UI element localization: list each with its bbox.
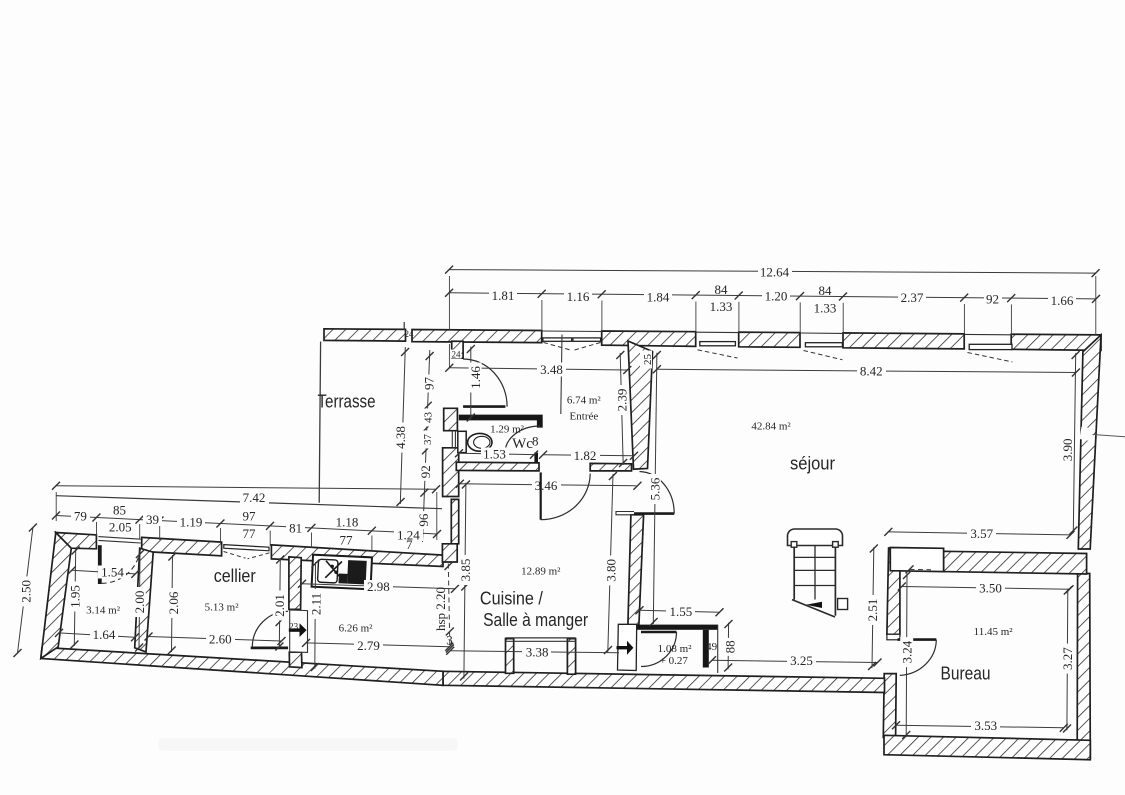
svg-text:2.37: 2.37 xyxy=(901,290,924,305)
svg-text:1.29 m²: 1.29 m² xyxy=(490,424,525,436)
svg-text:2.05: 2.05 xyxy=(109,519,132,534)
svg-text:1.84: 1.84 xyxy=(647,289,670,304)
svg-text:1.19: 1.19 xyxy=(180,515,203,530)
svg-text:92: 92 xyxy=(418,465,433,478)
svg-text:11.45 m²: 11.45 m² xyxy=(974,626,1014,638)
svg-text:2.06: 2.06 xyxy=(166,591,181,614)
svg-text:3.80: 3.80 xyxy=(604,559,619,582)
svg-text:7: 7 xyxy=(406,537,413,552)
svg-text:hsp 2.20: hsp 2.20 xyxy=(433,587,448,631)
svg-text:3.25: 3.25 xyxy=(790,653,813,668)
svg-text:3.48: 3.48 xyxy=(540,362,563,377)
svg-text:2.01: 2.01 xyxy=(272,594,287,617)
svg-text:2.11: 2.11 xyxy=(309,593,324,615)
svg-text:8.42: 8.42 xyxy=(860,363,883,378)
svg-text:84: 84 xyxy=(819,283,833,298)
svg-text:Bureau: Bureau xyxy=(941,663,991,683)
svg-text:97: 97 xyxy=(243,508,257,523)
svg-text:6.74 m²: 6.74 m² xyxy=(567,395,602,407)
svg-text:5.36: 5.36 xyxy=(647,477,662,500)
svg-text:4.38: 4.38 xyxy=(393,426,408,449)
svg-text:1.46: 1.46 xyxy=(468,366,483,389)
svg-text:1.81: 1.81 xyxy=(492,288,515,303)
svg-text:85: 85 xyxy=(113,502,126,517)
svg-text:+ 0.27: + 0.27 xyxy=(660,655,689,667)
svg-text:Salle à manger: Salle à manger xyxy=(483,610,588,630)
svg-text:2.98: 2.98 xyxy=(367,579,390,594)
svg-text:96: 96 xyxy=(416,513,431,527)
svg-text:1.53: 1.53 xyxy=(483,447,506,462)
svg-text:6.26 m²: 6.26 m² xyxy=(339,622,374,634)
svg-text:1.64: 1.64 xyxy=(93,627,116,642)
svg-text:92: 92 xyxy=(986,291,999,306)
svg-text:81: 81 xyxy=(289,520,302,535)
svg-text:1.95: 1.95 xyxy=(67,585,82,608)
svg-text:49: 49 xyxy=(706,641,718,653)
svg-text:3.85: 3.85 xyxy=(458,559,473,582)
svg-text:1.66: 1.66 xyxy=(1051,293,1074,308)
svg-text:Cuisine /: Cuisine / xyxy=(480,589,543,609)
svg-text:1.33: 1.33 xyxy=(814,300,837,315)
svg-text:1.20: 1.20 xyxy=(765,288,788,303)
svg-text:39: 39 xyxy=(146,512,159,527)
svg-text:Terrasse: Terrasse xyxy=(318,392,376,412)
svg-text:2.00: 2.00 xyxy=(132,591,147,614)
svg-text:25: 25 xyxy=(642,354,654,366)
svg-text:2.39: 2.39 xyxy=(614,389,629,412)
svg-text:3.50: 3.50 xyxy=(979,580,1002,595)
svg-text:1.18: 1.18 xyxy=(336,515,359,530)
svg-text:7.42: 7.42 xyxy=(243,490,266,505)
svg-text:88: 88 xyxy=(723,640,738,653)
svg-text:8: 8 xyxy=(532,433,539,448)
svg-text:42.84 m²: 42.84 m² xyxy=(751,420,791,432)
svg-text:37: 37 xyxy=(422,434,434,446)
svg-text:1.82: 1.82 xyxy=(574,448,597,463)
svg-text:Wc: Wc xyxy=(512,436,533,452)
svg-text:2.79: 2.79 xyxy=(357,638,380,653)
svg-text:cellier: cellier xyxy=(214,566,256,586)
svg-text:3.27: 3.27 xyxy=(1060,647,1075,670)
svg-text:3.24: 3.24 xyxy=(900,640,915,663)
svg-text:Entrée: Entrée xyxy=(570,411,599,423)
svg-text:5.13 m²: 5.13 m² xyxy=(205,601,240,613)
svg-text:24: 24 xyxy=(405,329,415,339)
svg-text:1.08 m²: 1.08 m² xyxy=(658,643,693,655)
svg-text:1.16: 1.16 xyxy=(567,289,590,304)
svg-text:1.54: 1.54 xyxy=(101,564,124,579)
svg-text:3.46: 3.46 xyxy=(535,478,558,493)
svg-text:97: 97 xyxy=(421,377,436,391)
svg-text:3.53: 3.53 xyxy=(974,718,997,733)
svg-text:77: 77 xyxy=(340,532,354,547)
svg-text:23: 23 xyxy=(289,621,299,631)
svg-text:2.50: 2.50 xyxy=(19,580,34,603)
svg-text:79: 79 xyxy=(74,508,87,523)
svg-text:3: 3 xyxy=(446,633,453,648)
svg-text:1.55: 1.55 xyxy=(670,604,693,619)
svg-text:3.38: 3.38 xyxy=(526,644,549,659)
svg-text:77: 77 xyxy=(243,526,257,541)
svg-text:3.90: 3.90 xyxy=(1060,439,1075,462)
svg-text:3.57: 3.57 xyxy=(970,526,993,541)
svg-text:séjour: séjour xyxy=(790,454,835,474)
svg-text:2.51: 2.51 xyxy=(865,599,880,622)
svg-text:1.33: 1.33 xyxy=(710,299,733,314)
svg-text:2.60: 2.60 xyxy=(209,631,232,646)
svg-text:3.14 m²: 3.14 m² xyxy=(86,604,121,616)
svg-text:12.64: 12.64 xyxy=(760,265,790,280)
svg-text:43: 43 xyxy=(423,412,435,424)
svg-text:12.89 m²: 12.89 m² xyxy=(521,565,561,577)
svg-text:84: 84 xyxy=(715,282,729,297)
svg-text:24: 24 xyxy=(452,350,462,360)
